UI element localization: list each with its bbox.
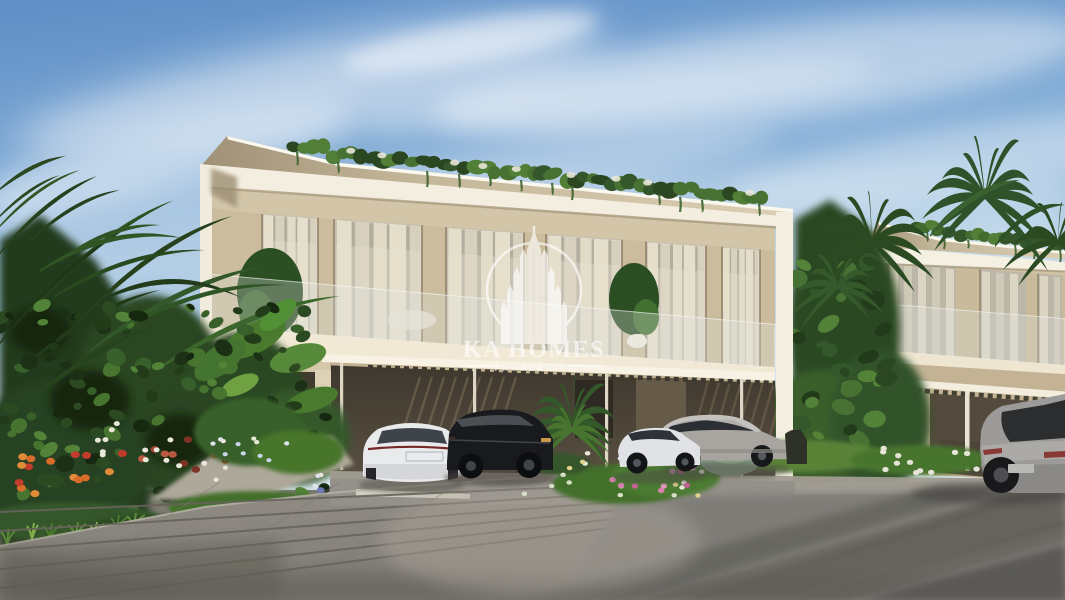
svg-text:PROPERTIES: PROPERTIES [494,364,575,374]
svg-text:KA HOMES: KA HOMES [463,337,605,363]
